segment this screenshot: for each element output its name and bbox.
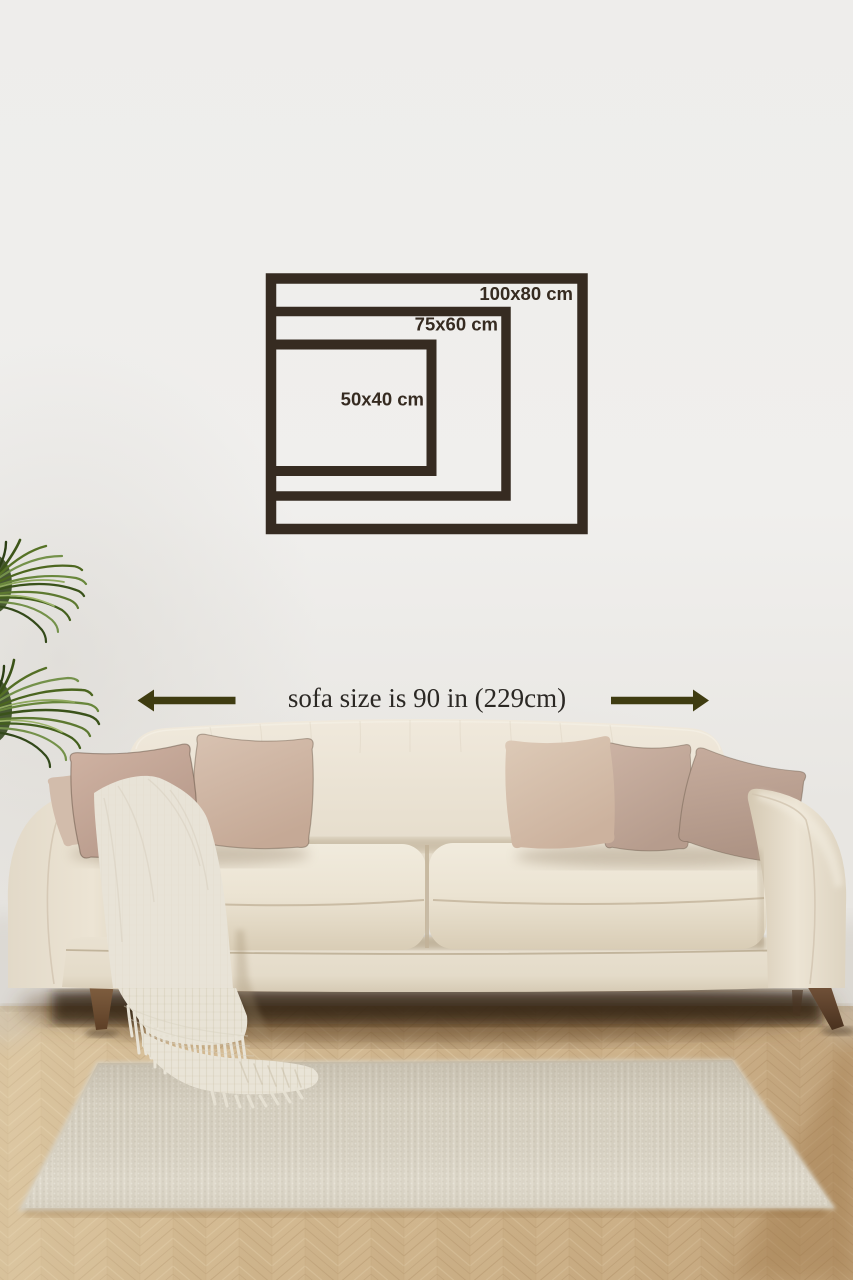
svg-text:100x80 cm: 100x80 cm bbox=[479, 283, 573, 304]
svg-text:sofa size is 90 in (229cm): sofa size is 90 in (229cm) bbox=[288, 683, 566, 713]
svg-text:50x40 cm: 50x40 cm bbox=[341, 389, 424, 410]
svg-text:75x60 cm: 75x60 cm bbox=[415, 314, 498, 335]
